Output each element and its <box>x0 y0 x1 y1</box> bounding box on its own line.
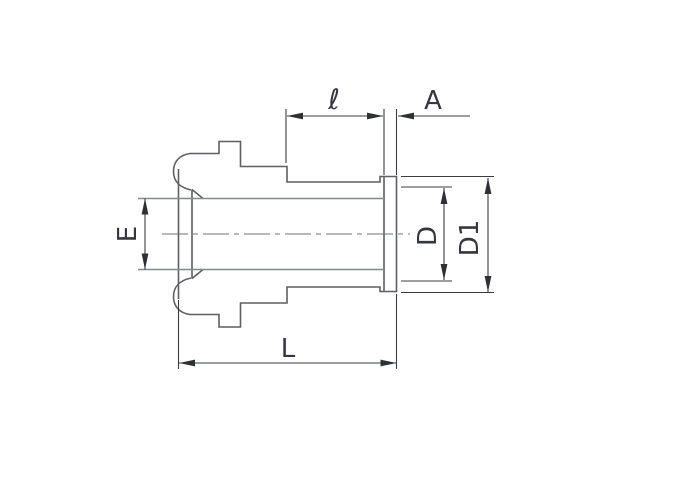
label-d: D <box>413 226 443 246</box>
part-outline <box>138 142 410 328</box>
arrowhead-l-left <box>179 360 195 367</box>
nut-bottom-arc <box>174 278 192 315</box>
extension-lines <box>179 109 495 369</box>
label-d1: D1 <box>455 220 485 257</box>
fitting-dimension-drawing: ℓ A E D D1 L <box>0 0 694 489</box>
label-e: E <box>113 226 143 242</box>
arrowhead-l-right <box>381 360 397 367</box>
label-ell: ℓ <box>327 83 340 116</box>
arrowhead-e-bottom <box>142 254 149 270</box>
nut-top-arc <box>174 154 192 191</box>
dimension-labels: ℓ A E D D1 L <box>113 83 485 364</box>
arrowhead-d-bottom <box>441 264 448 280</box>
bore-chamfer-top <box>192 190 203 199</box>
drawing-canvas: ℓ A E D D1 L <box>0 0 694 489</box>
bore-chamfer-bottom <box>192 270 203 279</box>
label-a: A <box>424 86 442 116</box>
arrowhead-ell-right <box>367 113 383 120</box>
arrowhead-a <box>398 113 414 120</box>
arrowhead-ell-left <box>287 113 303 120</box>
label-l: L <box>281 334 296 364</box>
arrowhead-d1-top <box>485 178 492 194</box>
arrowhead-d-top <box>441 188 448 204</box>
arrowhead-e-top <box>142 199 149 215</box>
arrowhead-d1-bottom <box>485 276 492 292</box>
